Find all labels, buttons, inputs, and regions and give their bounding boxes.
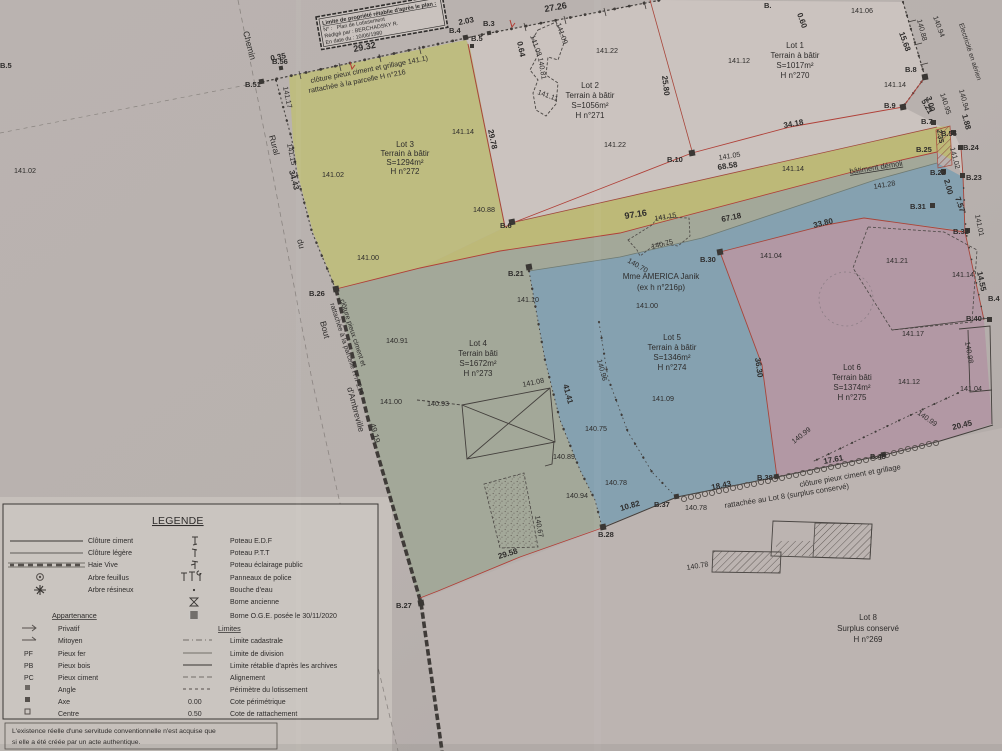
svg-text:Arbre résineux: Arbre résineux xyxy=(88,587,134,594)
svg-text:141.14: 141.14 xyxy=(452,127,474,136)
svg-text:H n°275: H n°275 xyxy=(838,393,868,402)
svg-text:Terrain bâti: Terrain bâti xyxy=(458,349,498,358)
svg-text:Mme AMERICA Janik: Mme AMERICA Janik xyxy=(623,272,700,281)
svg-text:S=1374m²: S=1374m² xyxy=(833,383,870,392)
svg-text:141.09: 141.09 xyxy=(652,394,674,403)
svg-text:141.04: 141.04 xyxy=(960,384,982,393)
svg-text:B.8: B.8 xyxy=(905,65,917,74)
svg-text:Borne O.G.E. posée le 30/11/20: Borne O.G.E. posée le 30/11/2020 xyxy=(230,613,337,620)
svg-text:Clôture légère: Clôture légère xyxy=(88,550,132,557)
svg-text:Lot 4: Lot 4 xyxy=(469,339,487,348)
svg-text:B.23: B.23 xyxy=(966,173,982,182)
svg-text:S=1672m²: S=1672m² xyxy=(459,359,496,368)
svg-text:H n°269: H n°269 xyxy=(854,635,884,644)
svg-text:141.00: 141.00 xyxy=(357,253,379,262)
svg-text:H n°270: H n°270 xyxy=(781,71,811,80)
svg-text:Terrain à bâtir: Terrain à bâtir xyxy=(648,343,697,352)
svg-text:Surplus conservé: Surplus conservé xyxy=(837,624,899,633)
svg-text:B.30: B.30 xyxy=(700,255,716,264)
svg-text:141.02: 141.02 xyxy=(322,170,344,179)
svg-text:B.51: B.51 xyxy=(245,80,261,89)
svg-text:141.06: 141.06 xyxy=(851,6,873,15)
svg-text:B.: B. xyxy=(764,1,772,10)
svg-text:Terrain bâti: Terrain bâti xyxy=(832,373,872,382)
svg-text:Bouche d'eau: Bouche d'eau xyxy=(230,587,273,594)
svg-text:140.93: 140.93 xyxy=(427,399,449,408)
svg-text:Appartenance: Appartenance xyxy=(52,611,97,620)
svg-text:B.25: B.25 xyxy=(916,145,932,154)
svg-text:Centre: Centre xyxy=(58,711,79,718)
svg-text:141.10: 141.10 xyxy=(517,295,539,304)
svg-text:140.89: 140.89 xyxy=(553,452,575,461)
svg-text:140.88: 140.88 xyxy=(473,205,495,214)
svg-text:B.7: B.7 xyxy=(921,117,933,126)
svg-text:H n°273: H n°273 xyxy=(464,369,494,378)
svg-text:Haie Vive: Haie Vive xyxy=(88,562,118,569)
svg-text:141.02: 141.02 xyxy=(14,166,36,175)
svg-text:(ex h n°216p): (ex h n°216p) xyxy=(637,283,685,292)
svg-text:B.26: B.26 xyxy=(309,289,325,298)
svg-text:Cote de rattachement: Cote de rattachement xyxy=(230,711,297,718)
svg-text:B.31: B.31 xyxy=(910,202,926,211)
svg-text:B.4: B.4 xyxy=(988,294,1001,303)
svg-text:141.17: 141.17 xyxy=(902,329,924,338)
svg-text:0.50: 0.50 xyxy=(188,711,202,718)
svg-text:0.00: 0.00 xyxy=(188,699,202,706)
svg-text:LEGENDE: LEGENDE xyxy=(152,515,204,527)
svg-text:B.27: B.27 xyxy=(396,601,412,610)
svg-text:Lot 6: Lot 6 xyxy=(843,363,861,372)
svg-text:B.40: B.40 xyxy=(966,314,982,323)
svg-text:L'existence réelle d'une servi: L'existence réelle d'une servitude conve… xyxy=(12,728,216,735)
svg-text:141.14: 141.14 xyxy=(782,164,804,173)
svg-text:Lot 1: Lot 1 xyxy=(786,41,804,50)
svg-text:S=1017m²: S=1017m² xyxy=(776,61,813,70)
svg-text:Mitoyen: Mitoyen xyxy=(58,638,83,645)
svg-text:B.10: B.10 xyxy=(667,155,683,164)
svg-text:Pieux ciment: Pieux ciment xyxy=(58,675,98,682)
svg-text:B.22: B.22 xyxy=(930,168,946,177)
svg-text:H n°274: H n°274 xyxy=(658,363,688,372)
svg-text:Cote périmétrique: Cote périmétrique xyxy=(230,699,286,706)
svg-text:Lot 3: Lot 3 xyxy=(396,140,414,149)
svg-text:Terrain à bâtir: Terrain à bâtir xyxy=(566,91,615,100)
svg-text:B.21: B.21 xyxy=(508,269,524,278)
svg-text:PB: PB xyxy=(24,663,34,670)
svg-text:141.14: 141.14 xyxy=(952,270,974,279)
svg-text:140.91: 140.91 xyxy=(386,336,408,345)
svg-text:B.4: B.4 xyxy=(449,26,462,35)
svg-text:Périmètre du lotissement: Périmètre du lotissement xyxy=(230,687,307,694)
svg-text:141.00: 141.00 xyxy=(636,301,658,310)
svg-text:Poteau éclairage public: Poteau éclairage public xyxy=(230,562,303,569)
svg-text:B.5: B.5 xyxy=(0,61,12,70)
svg-text:Arbre feuillus: Arbre feuillus xyxy=(88,575,129,582)
svg-text:141.04: 141.04 xyxy=(760,251,782,260)
svg-text:B.32: B.32 xyxy=(953,227,969,236)
svg-text:B.6: B.6 xyxy=(500,221,512,230)
svg-text:S=1056m²: S=1056m² xyxy=(571,101,608,110)
svg-text:Limite de division: Limite de division xyxy=(230,651,284,658)
svg-text:Limite rétablie d'après les ar: Limite rétablie d'après les archives xyxy=(230,663,338,670)
svg-text:Terrain à bâtir: Terrain à bâtir xyxy=(381,149,430,158)
svg-text:B.9: B.9 xyxy=(884,101,896,110)
svg-text:Panneaux de police: Panneaux de police xyxy=(230,575,292,582)
svg-text:141.12: 141.12 xyxy=(898,377,920,386)
svg-text:140.78: 140.78 xyxy=(685,503,707,512)
svg-text:Pieux bois: Pieux bois xyxy=(58,663,91,670)
svg-text:Poteau E.D.F: Poteau E.D.F xyxy=(230,538,272,545)
svg-text:B.45: B.45 xyxy=(870,452,886,461)
svg-text:Poteau P.T.T: Poteau P.T.T xyxy=(230,550,270,557)
svg-text:B.37: B.37 xyxy=(654,500,670,509)
svg-text:141.22: 141.22 xyxy=(604,140,626,149)
svg-text:141.00: 141.00 xyxy=(380,397,402,406)
svg-text:PC: PC xyxy=(24,675,34,682)
svg-text:B.5: B.5 xyxy=(471,34,483,43)
svg-text:140.94: 140.94 xyxy=(566,491,588,500)
svg-text:S=1346m²: S=1346m² xyxy=(653,353,690,362)
svg-text:B.38: B.38 xyxy=(757,473,773,482)
svg-text:Privatif: Privatif xyxy=(58,626,79,633)
svg-text:Terrain à bâtir: Terrain à bâtir xyxy=(771,51,820,60)
svg-text:Pieux fer: Pieux fer xyxy=(58,651,86,658)
svg-text:Limite cadastrale: Limite cadastrale xyxy=(230,638,283,645)
svg-text:S=1294m²: S=1294m² xyxy=(386,158,423,167)
svg-text:Alignement: Alignement xyxy=(230,675,265,682)
svg-text:141.12: 141.12 xyxy=(728,56,750,65)
svg-text:B.3: B.3 xyxy=(483,19,495,28)
svg-text:Angle: Angle xyxy=(58,687,76,694)
svg-text:Limites: Limites xyxy=(218,624,241,633)
svg-text:H n°272: H n°272 xyxy=(391,167,421,176)
svg-text:Axe: Axe xyxy=(58,699,70,706)
svg-text:PF: PF xyxy=(24,651,33,658)
svg-text:Borne ancienne: Borne ancienne xyxy=(230,599,279,606)
svg-text:140.78: 140.78 xyxy=(605,478,627,487)
svg-text:Lot 5: Lot 5 xyxy=(663,333,681,342)
svg-text:141.21: 141.21 xyxy=(886,256,908,265)
svg-text:Clôture ciment: Clôture ciment xyxy=(88,538,133,545)
svg-text:Lot 8: Lot 8 xyxy=(859,613,877,622)
svg-text:B.24: B.24 xyxy=(963,143,980,152)
svg-text:141.14: 141.14 xyxy=(884,80,906,89)
